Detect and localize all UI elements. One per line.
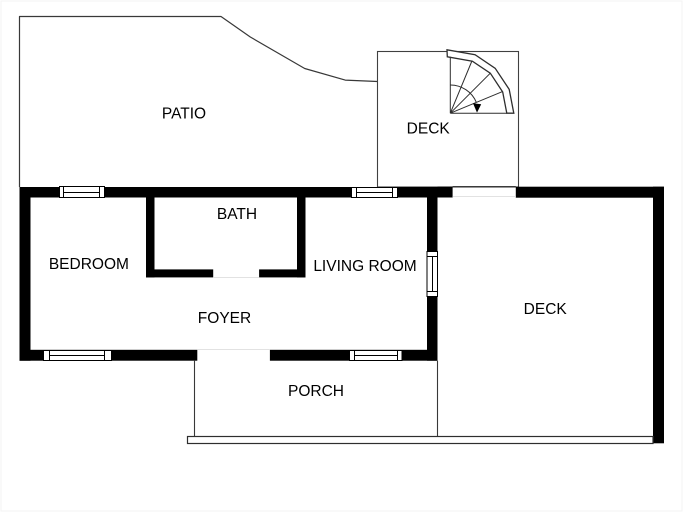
svg-text:FOYER: FOYER xyxy=(198,310,251,327)
svg-text:PORCH: PORCH xyxy=(288,383,344,400)
svg-text:DECK: DECK xyxy=(407,120,451,137)
svg-text:BATH: BATH xyxy=(217,206,257,223)
svg-text:DECK: DECK xyxy=(524,301,568,318)
svg-text:BEDROOM: BEDROOM xyxy=(49,256,129,273)
svg-text:PATIO: PATIO xyxy=(162,105,206,122)
svg-text:LIVING ROOM: LIVING ROOM xyxy=(313,258,416,275)
